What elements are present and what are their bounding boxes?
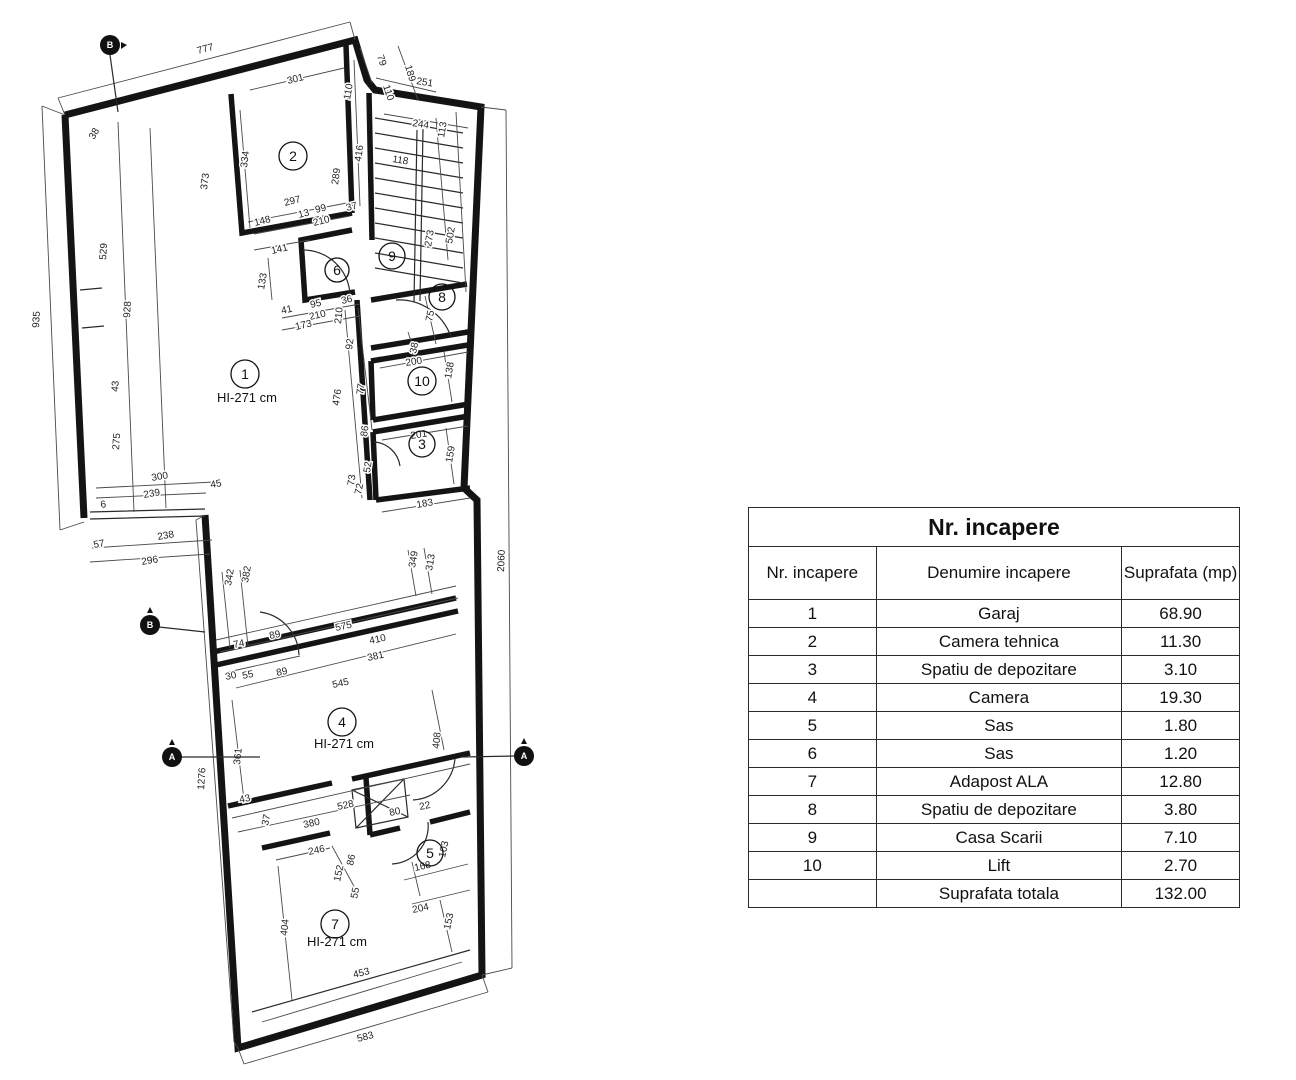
- dim-label: 583: [356, 1030, 375, 1045]
- cell-nr: 9: [749, 824, 877, 852]
- dim-label: 239: [143, 487, 162, 501]
- dim-label: 141: [270, 242, 289, 257]
- cell-nr: 4: [749, 684, 877, 712]
- shaft-crossed-box: [352, 779, 408, 828]
- outer-walls: [65, 40, 482, 1048]
- cell-name: Camera: [876, 684, 1122, 712]
- column-header-area: Suprafata (mp): [1122, 547, 1240, 600]
- cell-nr: 1: [749, 600, 877, 628]
- dim-label: 103: [437, 840, 451, 859]
- dim-label: 37: [260, 813, 273, 827]
- cell-area: 12.80: [1122, 768, 1240, 796]
- cell-nr: 6: [749, 740, 877, 768]
- dim-label: 75: [424, 309, 437, 323]
- dim-label: 138: [443, 361, 457, 380]
- cell-area: 2.70: [1122, 852, 1240, 880]
- table-row: 6Sas1.20: [749, 740, 1240, 768]
- table-title: Nr. incapere: [749, 508, 1240, 547]
- dim-label: 6: [100, 499, 108, 511]
- cell-area: 1.20: [1122, 740, 1240, 768]
- room-number: 1: [241, 366, 249, 382]
- dim-label: 382: [240, 565, 254, 584]
- dim-label: 416: [353, 144, 366, 162]
- dim-label: 404: [279, 918, 292, 936]
- dimension-labels: 777 79 189 110 251 301 110 334 416 373 2…: [31, 42, 508, 1045]
- dim-label: 52: [362, 460, 375, 473]
- section-marker-label: A: [169, 752, 176, 762]
- cell-area: 11.30: [1122, 628, 1240, 656]
- cell-area: 132.00: [1122, 880, 1240, 908]
- dim-label: 55: [241, 669, 255, 682]
- cell-area: 7.10: [1122, 824, 1240, 852]
- dim-label: 118: [392, 154, 410, 167]
- dim-label: 86: [359, 424, 372, 437]
- dim-label: 373: [199, 172, 212, 190]
- dim-label: 72: [353, 482, 366, 496]
- room-number: 6: [333, 262, 341, 278]
- cell-name: Lift: [876, 852, 1122, 880]
- dim-label: 528: [336, 799, 355, 813]
- dim-label: 545: [331, 677, 350, 691]
- staircase: [375, 118, 463, 302]
- room-schedule-table: Nr. incapere Nr. incapere Denumire incap…: [748, 507, 1240, 908]
- dim-label: 349: [407, 550, 421, 569]
- dim-label: 275: [111, 432, 123, 450]
- dim-label: 246: [307, 844, 326, 858]
- dim-label: 38: [408, 341, 421, 355]
- dim-label: 41: [280, 304, 294, 317]
- dim-label: 408: [431, 731, 444, 749]
- dim-label: 935: [31, 310, 43, 328]
- cell-name: Spatiu de depozitare: [876, 796, 1122, 824]
- cell-nr: 10: [749, 852, 877, 880]
- table-row: 9Casa Scarii7.10: [749, 824, 1240, 852]
- dim-label: 55: [349, 886, 362, 900]
- cell-area: 3.80: [1122, 796, 1240, 824]
- column-header-nr: Nr. incapere: [749, 547, 877, 600]
- cell-name: Casa Scarii: [876, 824, 1122, 852]
- dim-label: 89: [275, 666, 289, 679]
- dim-label: 502: [444, 226, 458, 245]
- dim-label: 183: [416, 497, 435, 511]
- dim-label: 74: [232, 638, 246, 651]
- dim-label: 45: [210, 478, 223, 491]
- dimension-lines: [42, 22, 512, 1064]
- cell-nr: 8: [749, 796, 877, 824]
- dim-label: 334: [239, 150, 252, 168]
- floor-plan: 777 79 189 110 251 301 110 334 416 373 2…: [0, 0, 740, 1080]
- room-number: 10: [414, 373, 430, 389]
- dim-label: 301: [286, 72, 305, 87]
- dim-label: 79: [374, 54, 388, 68]
- cell-name: Garaj: [876, 600, 1122, 628]
- cell-nr: [749, 880, 877, 908]
- dim-label: 296: [141, 554, 160, 568]
- table-row: 4Camera19.30: [749, 684, 1240, 712]
- cell-nr: 5: [749, 712, 877, 740]
- dim-label: 38: [87, 126, 102, 142]
- dim-label: 529: [98, 242, 110, 260]
- section-marker-arrow: [521, 738, 527, 744]
- table-row: 5Sas1.80: [749, 712, 1240, 740]
- dim-label: 113: [436, 120, 450, 138]
- dim-label: 210: [333, 306, 346, 324]
- dim-label: 92: [344, 337, 357, 350]
- section-marker-label: A: [521, 751, 528, 761]
- dim-label: 575: [334, 620, 353, 634]
- table-row: 10Lift2.70: [749, 852, 1240, 880]
- dim-label: 153: [442, 912, 456, 931]
- table-row: 8Spatiu de depozitare3.80: [749, 796, 1240, 824]
- dim-label: 110: [380, 84, 396, 103]
- dim-label: 30: [224, 670, 238, 683]
- dim-label: 189: [402, 64, 417, 83]
- room-number: 7: [331, 916, 339, 932]
- dim-label: 110: [342, 82, 356, 100]
- dim-label: 173: [294, 318, 313, 333]
- cell-name: Camera tehnica: [876, 628, 1122, 656]
- cell-nr: 3: [749, 656, 877, 684]
- dim-label: 89: [268, 629, 282, 642]
- dim-label: 380: [302, 817, 321, 831]
- dim-label: 928: [122, 300, 134, 318]
- room-height-label: HI-271 cm: [217, 390, 277, 405]
- room-number: 2: [289, 148, 297, 164]
- cell-name: Adapost ALA: [876, 768, 1122, 796]
- dim-label: 43: [110, 380, 122, 392]
- cell-nr: 7: [749, 768, 877, 796]
- dim-label: 43: [238, 793, 252, 806]
- cell-name: Spatiu de depozitare: [876, 656, 1122, 684]
- dim-label: 476: [331, 388, 344, 406]
- table-row: 3Spatiu de depozitare3.10: [749, 656, 1240, 684]
- dim-label: 777: [196, 42, 215, 57]
- section-marker-arrow: [121, 42, 127, 49]
- table-row: Suprafata totala132.00: [749, 880, 1240, 908]
- cell-area: 1.80: [1122, 712, 1240, 740]
- dim-label: 381: [366, 650, 385, 664]
- dim-label: 22: [418, 800, 432, 813]
- dim-label: 57: [93, 538, 106, 551]
- dim-label: 152: [332, 864, 346, 883]
- cell-nr: 2: [749, 628, 877, 656]
- dim-label: 300: [151, 470, 170, 484]
- dim-label: 133: [256, 272, 270, 291]
- dim-label: 168: [413, 860, 432, 874]
- room-number: 5: [426, 845, 434, 861]
- room-number: 8: [438, 289, 446, 305]
- room-number: 3: [418, 436, 426, 452]
- dim-label: 361: [232, 747, 245, 765]
- dim-label: 342: [223, 568, 237, 587]
- dim-label: 210: [312, 214, 331, 229]
- room-height-label: HI-271 cm: [314, 736, 374, 751]
- section-marker-arrow: [147, 607, 153, 613]
- room-height-label: HI-271 cm: [307, 934, 367, 949]
- table-row: 2Camera tehnica11.30: [749, 628, 1240, 656]
- dim-label: 210: [308, 308, 327, 323]
- cell-area: 19.30: [1122, 684, 1240, 712]
- table-row: 1Garaj68.90: [749, 600, 1240, 628]
- section-marker-label: B: [107, 40, 114, 50]
- dim-label: 244: [412, 118, 431, 132]
- cell-area: 3.10: [1122, 656, 1240, 684]
- dim-label: 204: [411, 902, 430, 916]
- dim-label: 80: [388, 806, 402, 819]
- dim-label: 37: [345, 200, 359, 213]
- cell-area: 68.90: [1122, 600, 1240, 628]
- cell-name: Sas: [876, 712, 1122, 740]
- room-number: 9: [388, 248, 396, 264]
- dim-label: 289: [330, 167, 343, 185]
- cell-name: Suprafata totala: [876, 880, 1122, 908]
- dim-label: 297: [283, 194, 302, 209]
- dim-label: 1276: [196, 767, 209, 790]
- column-header-name: Denumire incapere: [876, 547, 1122, 600]
- cell-name: Sas: [876, 740, 1122, 768]
- dim-label: 86: [345, 853, 358, 867]
- dim-label: 2060: [496, 549, 508, 572]
- dim-label: 273: [423, 229, 437, 248]
- dim-label: 77: [355, 382, 368, 395]
- dim-label: 410: [368, 633, 387, 647]
- blueprint-page: 777 79 189 110 251 301 110 334 416 373 2…: [0, 0, 1296, 1080]
- dim-label: 238: [157, 529, 176, 543]
- dim-label: 159: [444, 445, 458, 464]
- room-number: 4: [338, 714, 346, 730]
- dim-label: 313: [424, 553, 438, 572]
- table-row: 7Adapost ALA12.80: [749, 768, 1240, 796]
- section-marker-label: B: [147, 620, 154, 630]
- section-marker-arrow: [169, 739, 175, 745]
- dim-label: 36: [340, 294, 354, 307]
